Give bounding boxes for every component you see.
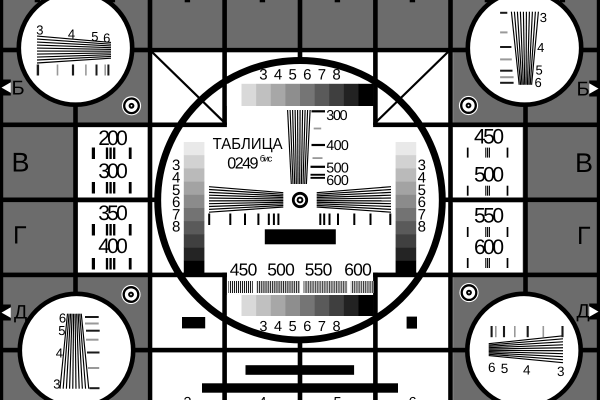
svg-text:Д: Д: [14, 302, 27, 324]
svg-text:7: 7: [318, 319, 326, 335]
svg-text:5: 5: [289, 66, 297, 83]
svg-text:350: 350: [98, 202, 128, 225]
svg-text:4: 4: [537, 40, 544, 55]
svg-text:6: 6: [303, 319, 311, 335]
svg-text:3: 3: [183, 395, 191, 400]
svg-text:550: 550: [474, 205, 504, 228]
svg-text:6: 6: [103, 30, 110, 45]
svg-text:7: 7: [318, 66, 326, 83]
svg-text:5: 5: [91, 29, 98, 44]
svg-text:3: 3: [540, 10, 547, 25]
svg-text:8: 8: [172, 219, 180, 236]
svg-text:8: 8: [333, 319, 341, 335]
svg-text:ТАБЛИЦА: ТАБЛИЦА: [213, 136, 283, 153]
svg-text:4: 4: [523, 362, 531, 377]
svg-text:5: 5: [289, 319, 297, 335]
svg-text:В: В: [575, 148, 593, 178]
svg-text:Г: Г: [577, 222, 591, 250]
svg-text:3: 3: [259, 319, 267, 335]
svg-text:Д: Д: [577, 301, 590, 323]
svg-text:5: 5: [333, 395, 341, 400]
svg-text:8: 8: [332, 66, 340, 83]
svg-text:4: 4: [274, 66, 282, 83]
svg-text:600: 600: [326, 173, 349, 189]
svg-text:3: 3: [53, 377, 60, 392]
svg-text:450: 450: [474, 126, 504, 149]
svg-text:3: 3: [36, 23, 43, 38]
svg-text:Б: Б: [12, 77, 25, 99]
svg-text:450: 450: [230, 259, 258, 279]
svg-text:6: 6: [488, 360, 496, 375]
svg-text:8: 8: [418, 219, 426, 236]
svg-text:бис: бис: [260, 153, 273, 163]
svg-text:400: 400: [98, 235, 128, 258]
svg-text:6: 6: [408, 395, 416, 400]
svg-text:6: 6: [303, 66, 311, 83]
svg-text:300: 300: [98, 160, 128, 183]
svg-text:4: 4: [68, 27, 75, 42]
svg-text:Г: Г: [13, 222, 27, 250]
svg-text:3: 3: [259, 66, 267, 83]
svg-text:6: 6: [534, 75, 541, 90]
svg-text:4: 4: [258, 395, 266, 400]
svg-text:Б: Б: [577, 78, 590, 100]
svg-text:5: 5: [58, 323, 65, 338]
svg-text:500: 500: [267, 259, 295, 279]
svg-text:600: 600: [344, 259, 372, 279]
svg-text:600: 600: [474, 236, 504, 259]
svg-text:500: 500: [474, 164, 504, 187]
svg-text:5: 5: [501, 361, 509, 376]
svg-text:4: 4: [274, 319, 282, 335]
svg-text:3: 3: [557, 364, 565, 379]
svg-text:550: 550: [305, 259, 333, 279]
svg-text:200: 200: [98, 127, 128, 150]
svg-text:В: В: [12, 148, 30, 178]
svg-text:300: 300: [326, 108, 347, 124]
svg-text:0249: 0249: [227, 155, 258, 173]
svg-text:4: 4: [56, 346, 63, 361]
svg-text:400: 400: [326, 138, 349, 154]
